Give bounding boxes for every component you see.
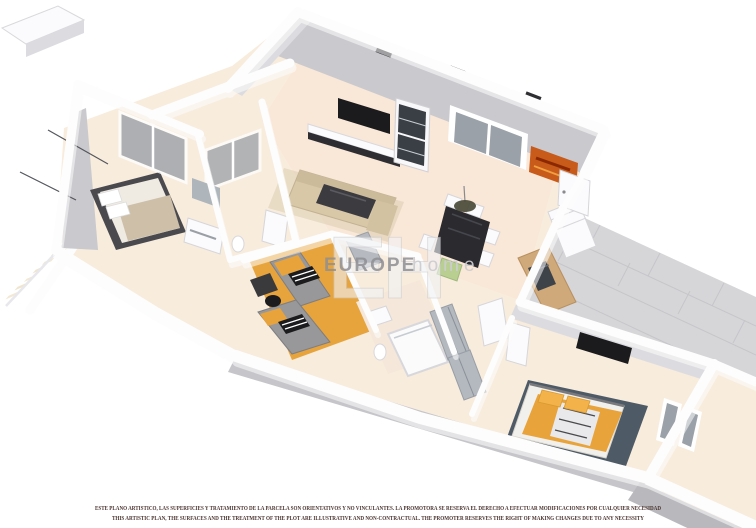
disclaimer-line-es: ESTE PLANO ARTISTICO, LAS SUPERFICIES Y … bbox=[95, 505, 661, 512]
desk-chair bbox=[265, 295, 281, 307]
floor-plan-svg: EH EUROPE home ESTE PLANO ARTISTICO, LAS… bbox=[0, 0, 756, 528]
door-handle bbox=[562, 190, 565, 193]
floor-plan-render: EH EUROPE home ESTE PLANO ARTISTICO, LAS… bbox=[0, 0, 756, 528]
disclaimer-line-en: THIS ARTISTIC PLAN, THE SURFACES AND THE… bbox=[112, 515, 644, 522]
disclaimer: ESTE PLANO ARTISTICO, LAS SUPERFICIES Y … bbox=[95, 505, 661, 522]
roof-block bbox=[2, 6, 84, 57]
toilet bbox=[232, 236, 244, 252]
watermark-brand-light: home bbox=[412, 255, 480, 276]
display-cabinet bbox=[394, 98, 430, 172]
toilet bbox=[374, 344, 386, 360]
watermark-brand: EUROPE bbox=[324, 255, 416, 276]
